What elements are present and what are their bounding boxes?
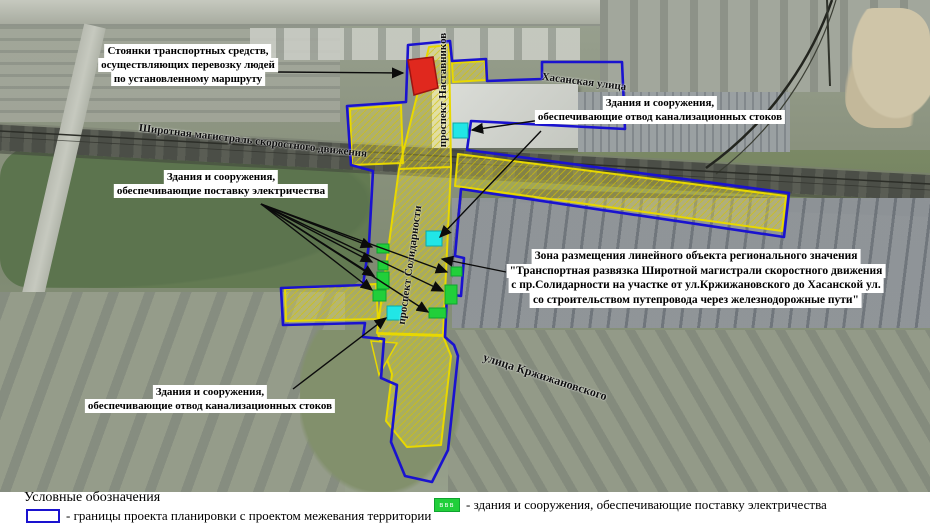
callout-line: Зона размещения линейного объекта регион…	[532, 249, 861, 264]
callout-line: Здания и сооружения,	[153, 385, 267, 399]
sewage-facility-marker	[453, 123, 468, 138]
parking-area-marker	[408, 57, 438, 95]
callout-line: обеспечивающие отвод канализационных сто…	[535, 110, 785, 124]
railway-arc	[706, 0, 832, 168]
legend-label: - здания и сооружения, обеспечивающие по…	[466, 497, 827, 513]
electricity-facility-marker	[445, 285, 457, 304]
legend-title: Условные обозначения	[24, 490, 160, 506]
electricity-facility-marker	[451, 267, 462, 276]
street-label-nastavnikov: проспект Наставников	[437, 33, 449, 148]
sewage-facility-marker	[426, 231, 442, 246]
electricity-swatch-icon: ввв	[434, 498, 460, 512]
callout-arrow	[293, 318, 386, 389]
boundary-swatch-icon	[26, 509, 60, 523]
planning-map-page: Широтная магистраль скоростного движения…	[0, 0, 930, 525]
callout-line: Здания и сооружения,	[164, 170, 278, 184]
callout-line: обеспечивающие отвод канализационных сто…	[85, 399, 335, 413]
electricity-facility-marker	[429, 308, 446, 318]
callout-parking: Стоянки транспортных средств, осуществля…	[98, 44, 278, 86]
electricity-facility-marker	[373, 290, 386, 301]
callout-line: со строительством путепровода через желе…	[530, 293, 862, 308]
callout-line: Стоянки транспортных средств,	[104, 44, 271, 58]
callout-electricity: Здания и сооружения, обеспечивающие пост…	[114, 170, 328, 198]
railway-arc-2	[716, 0, 836, 174]
callout-line: по установленному маршруту	[111, 72, 265, 86]
callout-line: осуществляющих перевозку людей	[98, 58, 278, 72]
callout-zone: Зона размещения линейного объекта регион…	[507, 249, 886, 308]
callout-arrow	[278, 72, 403, 73]
map-canvas: Широтная магистраль скоростного движения…	[0, 0, 930, 492]
callout-line: обеспечивающие поставку электричества	[114, 184, 328, 198]
legend-item-boundary: - границы проекта планировки с проектом …	[26, 508, 431, 524]
callout-sewage-top: Здания и сооружения, обеспечивающие отво…	[535, 96, 785, 124]
callout-line: Здания и сооружения,	[603, 96, 717, 110]
legend-item-electricity: ввв - здания и сооружения, обеспечивающи…	[434, 497, 827, 513]
callout-line: с пр.Солидарности на участке от ул.Кржиж…	[508, 278, 884, 293]
callout-arrow	[261, 204, 372, 290]
callout-line: "Транспортная развязка Широтной магистра…	[507, 264, 886, 279]
callout-sewage-bottom: Здания и сооружения, обеспечивающие отво…	[85, 385, 335, 413]
legend-label: - границы проекта планировки с проектом …	[66, 508, 431, 524]
